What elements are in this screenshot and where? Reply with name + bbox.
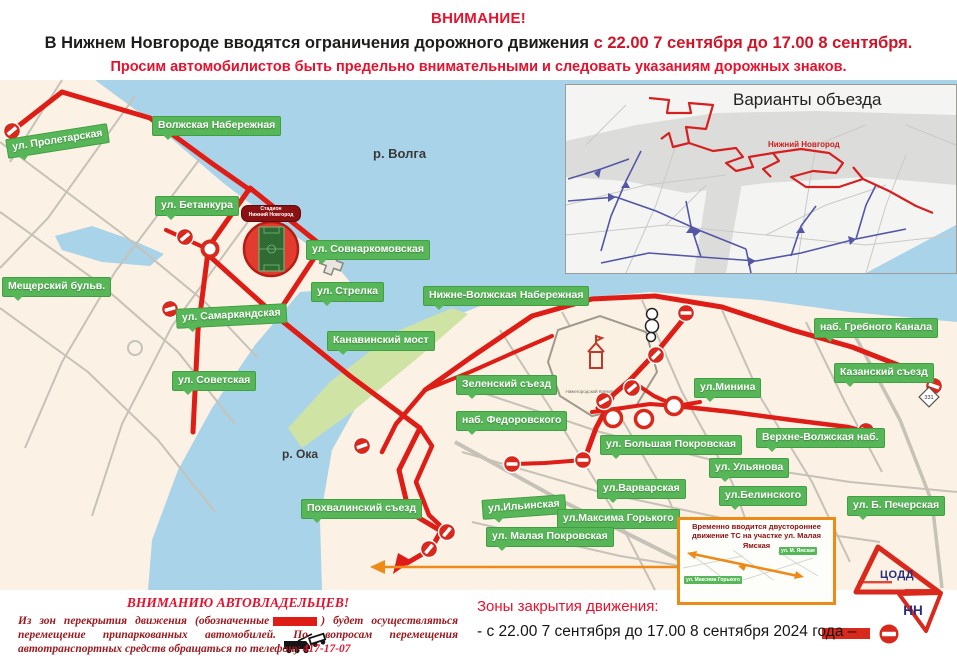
car-owners-notice: ВНИМАНИЮ АВТОВЛАДЕЛЬЦЕВ! Из зон перекрыт… (18, 595, 458, 656)
mini-street-label: ул. Максима Горького (684, 576, 742, 584)
street-label: Мещерский бульв. (2, 277, 111, 297)
kremlin-label: Нижегородский Кремль (560, 389, 620, 394)
volga-river-label: р. Волга (373, 146, 426, 161)
street-label: ул.Максима Горького (557, 509, 680, 529)
street-label: Нижне-Волжская Набережная (423, 286, 589, 306)
street-label: Казанский съезд (834, 363, 934, 383)
street-label: наб. Федоровского (456, 411, 567, 431)
owners-notice-body: Из зон перекрытия движения (обозначенные… (18, 614, 458, 656)
street-label: ул. Большая Покровская (600, 435, 742, 455)
notice-text: Временно вводится двустороннее движение … (683, 522, 830, 550)
legend-title: Зоны закрытия движения: (477, 598, 856, 615)
no-entry-icon (575, 452, 592, 469)
street-label: ул. Малая Покровская (486, 527, 614, 547)
street-label: ул. Стрелка (311, 282, 384, 302)
stadium-label: Стадион Нижний Новгород (241, 205, 301, 222)
inset-title: Варианты объезда (733, 90, 881, 110)
page-title: ВНИМАНИЕ! (0, 10, 957, 27)
header-subtitle: В Нижнем Новгороде вводятся ограничения … (0, 34, 957, 53)
street-label: ул. Совнаркомовская (306, 240, 430, 260)
legend: Зоны закрытия движения: - с 22.00 7 сент… (477, 598, 856, 641)
two-way-notice-box: Временно вводится двустороннее движение … (677, 517, 836, 605)
street-label: ул. Бетанкура (155, 196, 239, 216)
detour-map-canvas (566, 85, 956, 273)
subtitle-black-part: В Нижнем Новгороде вводятся ограничения … (45, 34, 589, 52)
oka-river-label: р. Ока (282, 447, 318, 461)
street-label: ул. Б. Печерская (847, 496, 945, 516)
svg-text:331: 331 (924, 395, 933, 401)
owners-notice-title: ВНИМАНИЮ АВТОВЛАДЕЛЬЦЕВ! (18, 595, 458, 611)
street-label: Похвалинский съезд (301, 499, 422, 519)
phone-number: 417-17-07 (303, 643, 351, 655)
header: ВНИМАНИЕ! В Нижнем Новгороде вводятся ог… (0, 0, 957, 75)
stadium-label-line2: Нижний Новгород (249, 212, 294, 218)
closure-color-swatch (273, 617, 317, 626)
street-label: Зеленский съезд (456, 375, 557, 395)
mini-street-label: ул. М. Ямская (779, 547, 817, 555)
subtitle-red-part: с 22.00 7 сентября до 17.00 8 сентября. (589, 34, 912, 52)
street-label: Волжская Набережная (152, 116, 281, 136)
header-warning-line: Просим автомобилистов быть предельно вни… (0, 59, 957, 75)
street-label: ул.Варварская (597, 479, 686, 499)
stadium-icon (244, 222, 298, 276)
street-label: Верхне-Волжская наб. (756, 428, 885, 448)
street-label: Канавинский мост (327, 331, 435, 351)
street-label: ул.Белинского (719, 486, 807, 506)
street-label: наб. Гребного Канала (814, 318, 938, 338)
roundabout-icon (203, 242, 218, 257)
no-entry-icon (504, 456, 521, 473)
owners-body-before: Из зон перекрытия движения (обозначенные (18, 615, 269, 627)
street-label: ул. Ульянова (709, 458, 789, 478)
detour-inset-map (565, 84, 957, 274)
legend-item-text: - с 22.00 7 сентября до 17.00 8 сентября… (477, 623, 856, 641)
street-label: ул. Советская (172, 371, 256, 391)
road-closure-poster: 331 (0, 0, 957, 664)
inset-city-label: Нижний Новгород (768, 140, 840, 149)
logo-bottom-text: НН (903, 603, 923, 618)
street-label: ул.Минина (694, 378, 761, 398)
no-entry-icon (678, 305, 695, 322)
logo-top-text: ЦОДД (880, 569, 914, 581)
